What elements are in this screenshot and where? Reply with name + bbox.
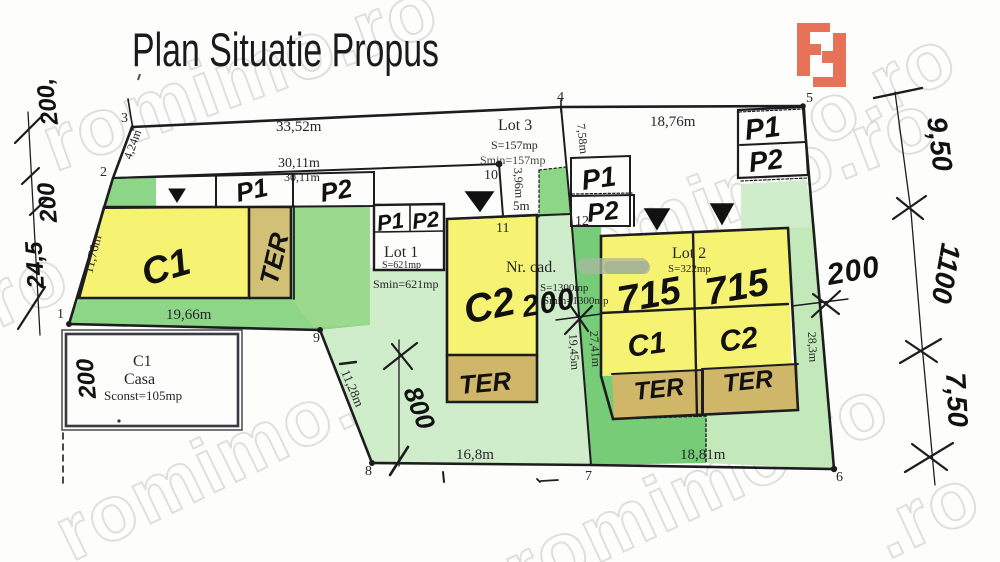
svg-text:28,3m: 28,3m xyxy=(805,331,821,363)
svg-text:TER: TER xyxy=(722,365,775,398)
svg-text:P1: P1 xyxy=(375,207,405,236)
svg-text:Sconst=105mp: Sconst=105mp xyxy=(104,388,182,403)
svg-text:19,45m: 19,45m xyxy=(566,333,583,371)
svg-text:4: 4 xyxy=(557,90,564,105)
svg-text:6: 6 xyxy=(836,470,843,485)
svg-text:Lot 3: Lot 3 xyxy=(498,117,532,134)
svg-text:7: 7 xyxy=(585,469,592,484)
svg-text:Nr. cad.: Nr. cad. xyxy=(506,259,556,276)
svg-text:1100: 1100 xyxy=(926,241,967,306)
svg-text:Smin=157mp: Smin=157mp xyxy=(480,153,545,167)
svg-text:Lot 1: Lot 1 xyxy=(384,244,418,261)
svg-text:C1: C1 xyxy=(625,326,668,364)
svg-text:200,: 200, xyxy=(31,77,64,128)
svg-text:27,41m: 27,41m xyxy=(587,330,604,368)
svg-text:Lot 2: Lot 2 xyxy=(672,245,706,262)
svg-text:C2: C2 xyxy=(717,321,760,359)
svg-text:11: 11 xyxy=(496,221,509,236)
svg-text:16,8m: 16,8m xyxy=(456,447,494,463)
svg-text:P2: P2 xyxy=(747,143,785,178)
svg-text:19,66m: 19,66m xyxy=(166,307,212,323)
svg-text:5m: 5m xyxy=(513,198,530,213)
svg-text:18,76m: 18,76m xyxy=(650,114,696,130)
svg-text:200: 200 xyxy=(72,357,103,401)
svg-text:10: 10 xyxy=(484,168,498,183)
svg-text:2: 2 xyxy=(100,165,107,180)
svg-text:200: 200 xyxy=(33,181,64,225)
svg-text:3,96m: 3,96m xyxy=(511,167,527,199)
svg-text:Smin=621mp: Smin=621mp xyxy=(373,277,438,291)
svg-text:P1: P1 xyxy=(743,111,782,147)
svg-text:.ro: .ro xyxy=(858,449,994,562)
svg-text:30,11m: 30,11m xyxy=(278,156,320,171)
svg-text:P2: P2 xyxy=(318,173,355,208)
svg-text:7,58m: 7,58m xyxy=(574,123,591,155)
svg-text:P2: P2 xyxy=(411,206,441,234)
svg-text:3: 3 xyxy=(121,111,128,126)
svg-text:S=157mp: S=157mp xyxy=(491,138,538,152)
svg-text:8: 8 xyxy=(365,464,372,479)
svg-text:7,50: 7,50 xyxy=(940,372,974,428)
svg-text:C1: C1 xyxy=(133,353,152,370)
svg-text:Casa: Casa xyxy=(124,371,155,388)
svg-text:200: 200 xyxy=(824,250,883,292)
svg-text:1: 1 xyxy=(57,307,64,322)
svg-text:TER: TER xyxy=(633,373,686,406)
svg-text:P2: P2 xyxy=(585,195,620,228)
svg-text:30,11m: 30,11m xyxy=(284,170,321,184)
svg-text:18,81m: 18,81m xyxy=(680,447,726,463)
svg-text:P1: P1 xyxy=(580,160,618,195)
svg-text:5: 5 xyxy=(806,91,813,106)
svg-text:TER: TER xyxy=(458,366,513,400)
svg-text:24,5: 24,5 xyxy=(21,240,50,290)
svg-text:9: 9 xyxy=(313,331,320,346)
svg-text:Plan Situatie Propus: Plan Situatie Propus xyxy=(132,23,439,76)
svg-text:S=621mp: S=621mp xyxy=(382,260,421,271)
svg-text:33,52m: 33,52m xyxy=(276,119,322,135)
